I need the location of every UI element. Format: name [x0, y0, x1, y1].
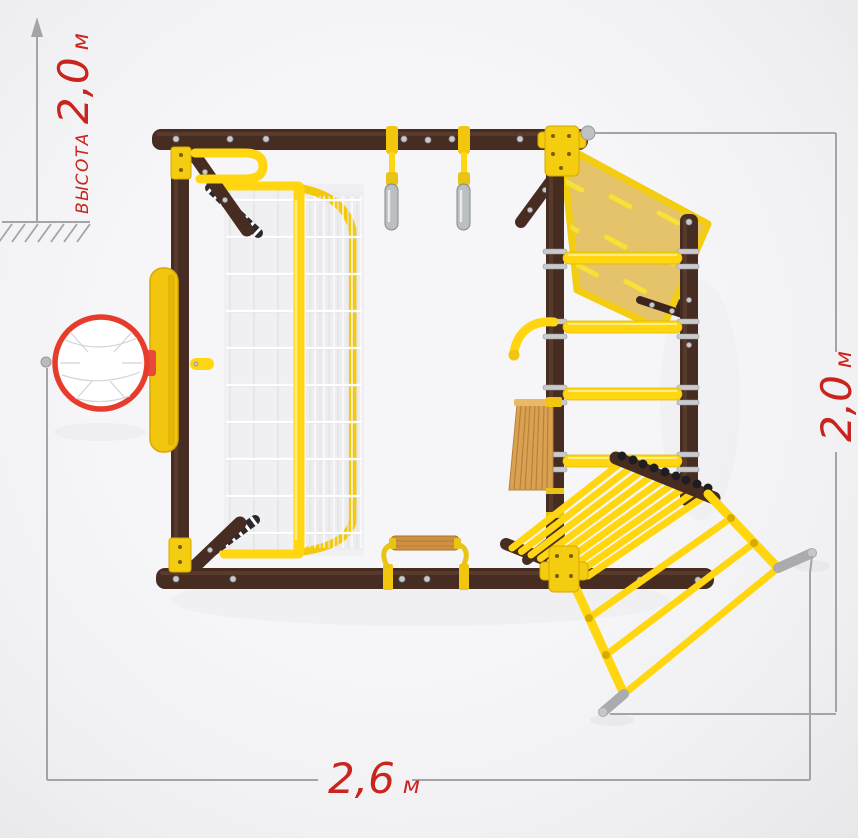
backboard-edge-shade [168, 274, 175, 446]
ring-strap-clamp-1 [386, 126, 398, 154]
ladder-foot-left [603, 694, 624, 712]
height-label: высота2,0м [49, 33, 98, 214]
gymnastic-ring-1 [385, 184, 398, 230]
ground-hatch [0, 224, 90, 242]
swing-seat [391, 536, 459, 550]
climbing-net [209, 184, 364, 556]
width-label: 2,6м [328, 754, 420, 803]
product-diagram: высота2,0м 2,0м 2,6м [0, 0, 858, 838]
dimension-height: высота2,0м [0, 17, 98, 242]
ring-strap-clamp-2 [458, 126, 470, 154]
top-left-bracket [171, 147, 191, 179]
beam-end-cap [581, 126, 595, 140]
top-beam-highlight [156, 132, 584, 136]
bottom-beam-highlight [160, 571, 710, 575]
hoop-front-connector [41, 357, 51, 367]
depth-label: 2,0м [812, 351, 858, 442]
right-post [680, 214, 698, 506]
bottom-left-bracket [169, 538, 191, 572]
foot-cap-right [808, 549, 816, 557]
hook-handle-cap [509, 350, 520, 361]
foot-cap-left [599, 708, 607, 716]
gymnastic-ring-2 [457, 184, 470, 230]
arrow-up-icon [31, 17, 43, 37]
inner-post-band-1 [546, 488, 564, 494]
